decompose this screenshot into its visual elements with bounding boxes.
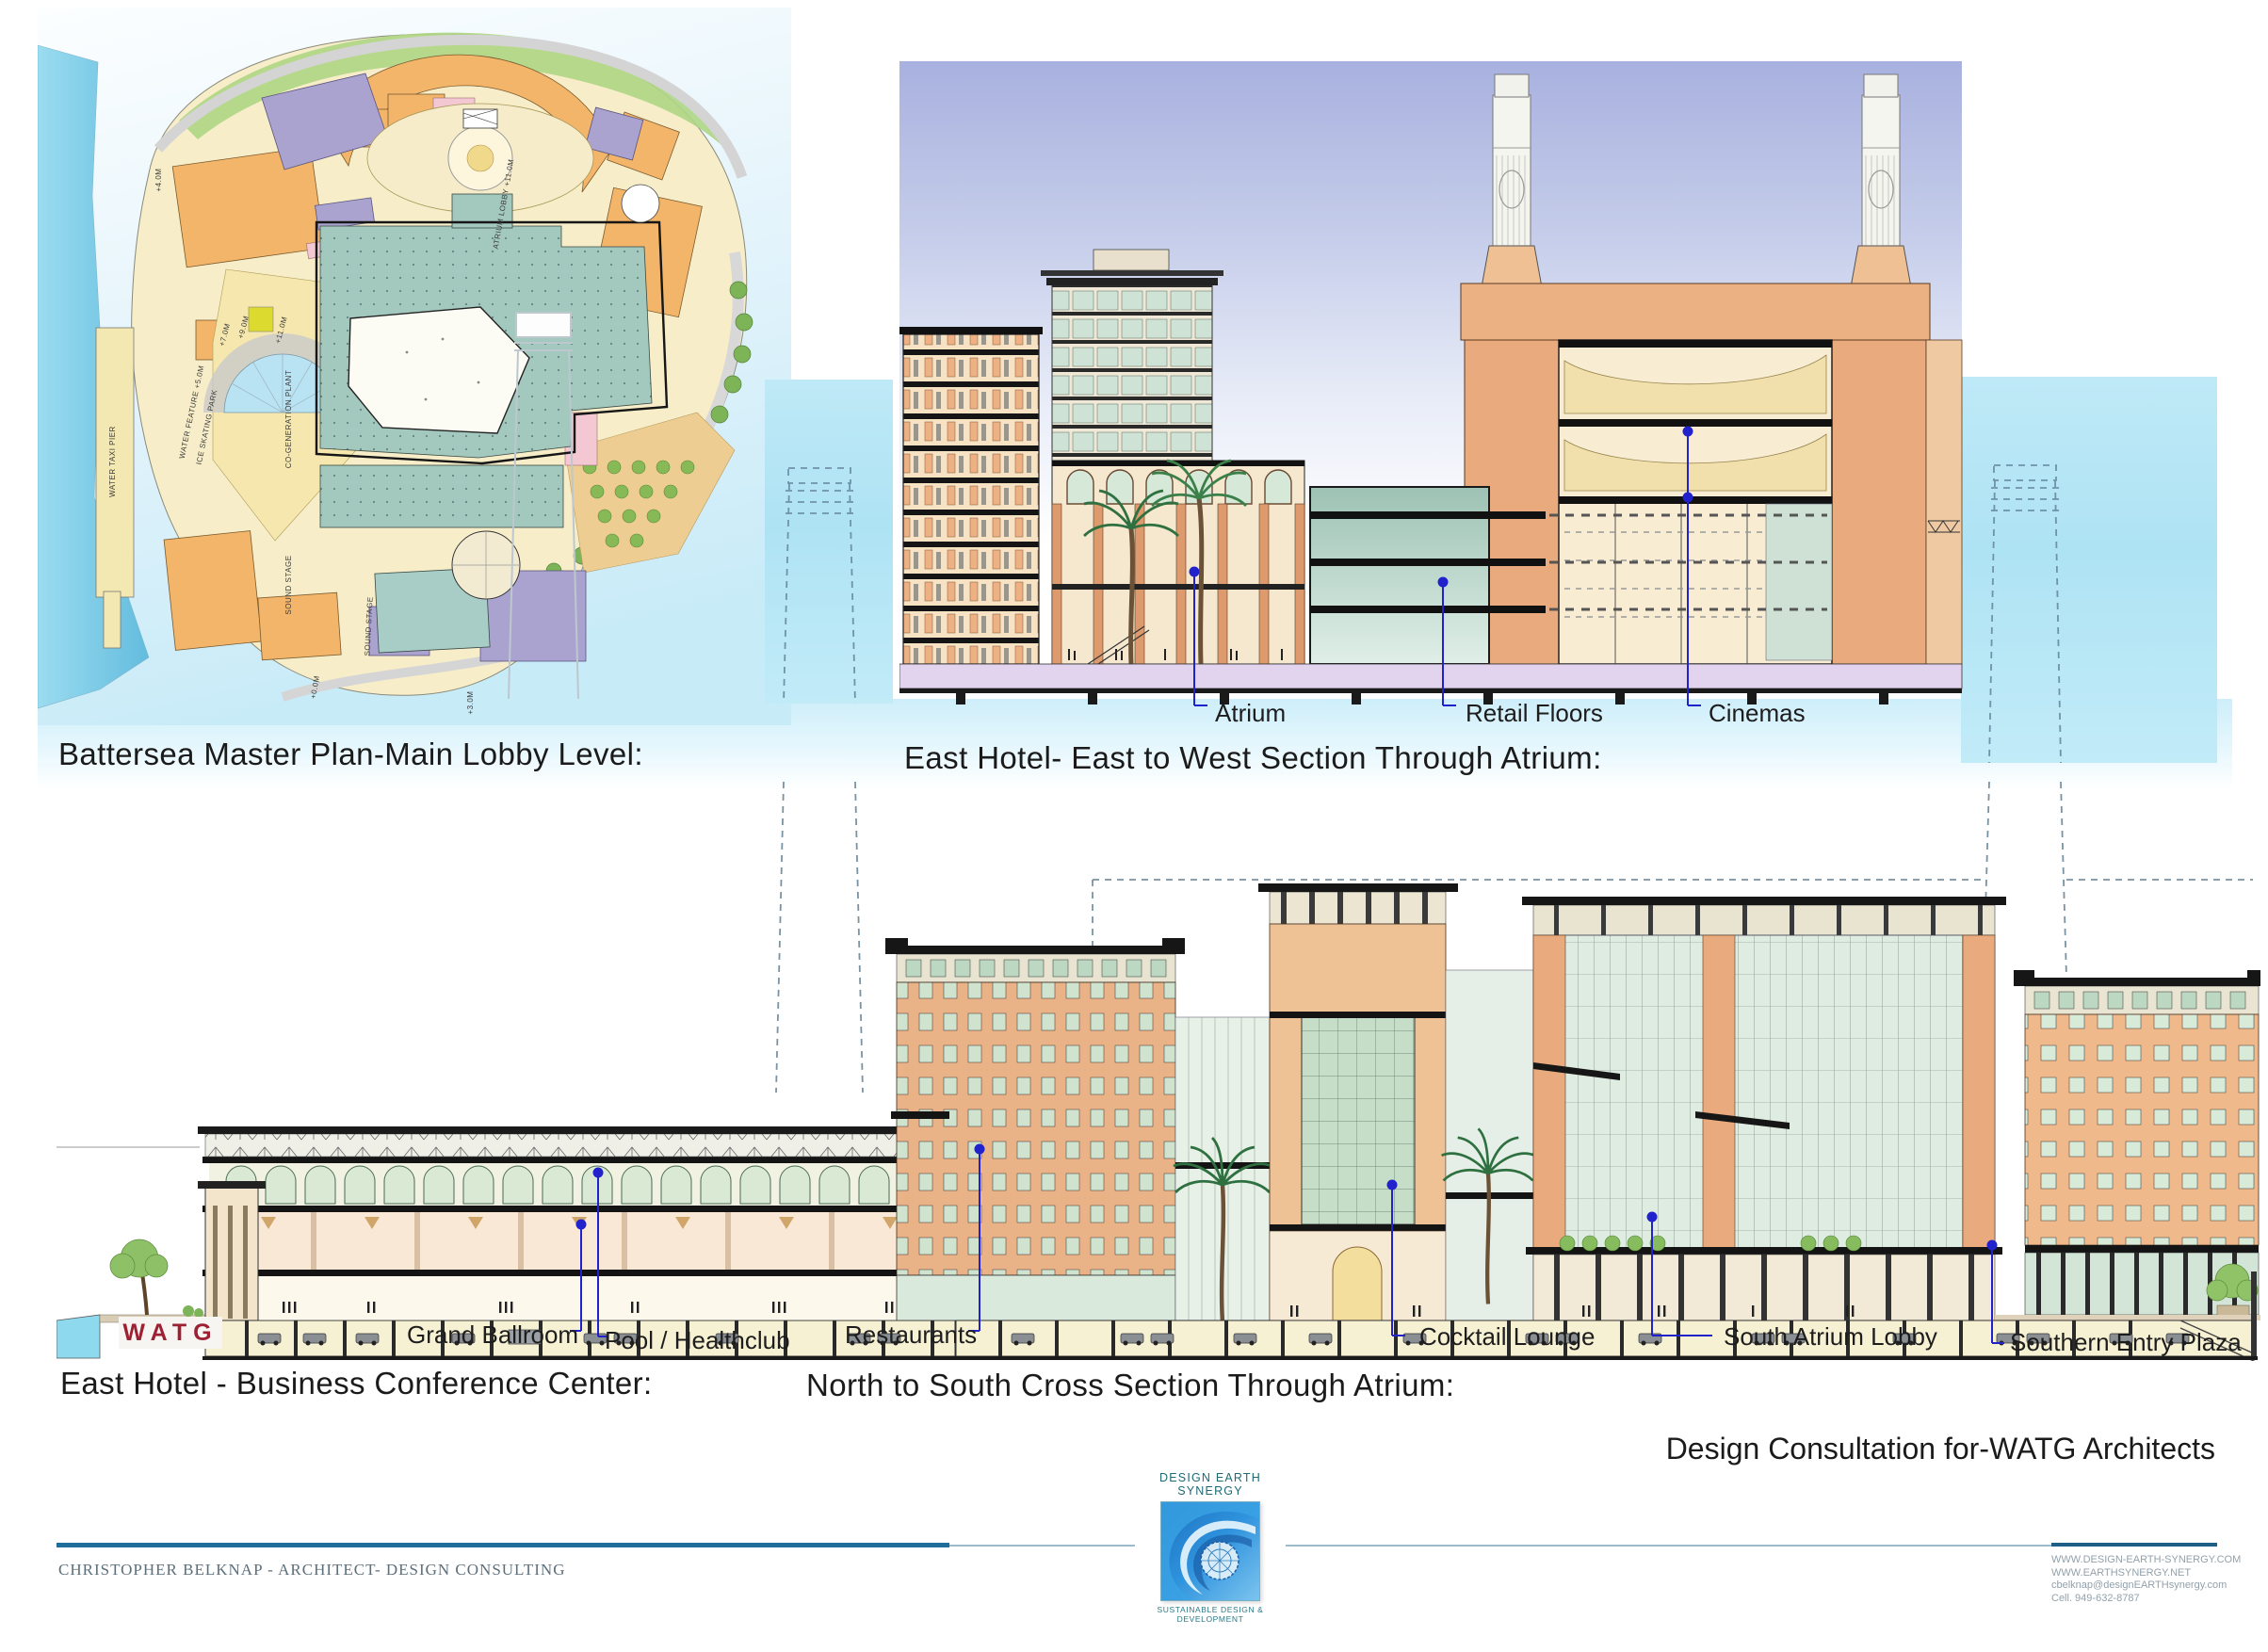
ns-label-restaurants-text: Restaurants <box>845 1320 977 1349</box>
presentation-board: WATER TAXI PIER ATRIUM LOBBY +11.0M CO-G… <box>0 0 2268 1652</box>
north-south-section-drawing <box>57 782 2260 1361</box>
ns-label-southern-entry-plaza: Southern Entry Plaza <box>2010 1328 2242 1357</box>
north-south-section-title: North to South Cross Section Through Atr… <box>806 1368 1454 1403</box>
wave-logo-image <box>1160 1501 1260 1601</box>
ns-label-south-atrium-text: South Atrium Lobby <box>1724 1322 1937 1351</box>
cyan-strip-right <box>1961 377 2217 763</box>
east-west-section-drawing <box>899 61 1964 721</box>
watg-logo-text: WATG <box>122 1320 218 1347</box>
conference-title-text: East Hotel - Business Conference Center: <box>60 1366 653 1401</box>
logo-title-text: DESIGN EARTH SYNERGY <box>1135 1471 1286 1498</box>
ns-label-cocktail-lounge: Cocktail Lounge <box>1419 1322 1595 1352</box>
plan-label-cogeneration: CO-GENERATION PLANT <box>284 370 293 468</box>
ns-label-restaurants: Restaurants <box>845 1320 977 1350</box>
ew-label-atrium: Atrium <box>1215 699 1286 728</box>
master-plan-drawing: WATER TAXI PIER ATRIUM LOBBY +11.0M CO-G… <box>38 8 791 733</box>
east-west-title-text: East Hotel- East to West Section Through… <box>904 740 1602 775</box>
dashed-chimney-right-top <box>1961 377 2217 763</box>
architect-credit-line: CHRISTOPHER BELKNAP - ARCHITECT- DESIGN … <box>58 1561 565 1579</box>
contact-website-2: WWW.EARTHSYNERGY.NET <box>2051 1567 2241 1580</box>
ew-left-hotel-tower <box>899 327 1043 664</box>
plan-label-water-taxi-pier: WATER TAXI PIER <box>108 426 117 497</box>
ew-atrium <box>1052 461 1304 668</box>
footer-rule-right <box>2051 1543 2217 1547</box>
ns-label-grand-ballroom-text: Grand Ballroom <box>407 1320 578 1349</box>
ew-label-atrium-text: Atrium <box>1215 699 1286 727</box>
ghost-chimney-sketch <box>499 311 589 702</box>
dashed-chimney-left-top <box>765 380 893 704</box>
ns-label-pool-healthclub: Pool / Healthclub <box>605 1326 790 1355</box>
plan-label-level-3: +3.0M <box>466 691 475 715</box>
master-plan-title: Battersea Master Plan-Main Lobby Level: <box>58 737 643 772</box>
north-south-title-text: North to South Cross Section Through Atr… <box>806 1368 1454 1402</box>
contact-phone: Cell. 949-632-8787 <box>2051 1593 2241 1606</box>
consultation-credit-text: Design Consultation for-WATG Architects <box>1666 1432 2215 1466</box>
ew-label-cinemas-text: Cinemas <box>1709 699 1806 727</box>
plan-label-sound-stage-1: SOUND STAGE <box>284 555 293 614</box>
ns-label-pool-text: Pool / Healthclub <box>605 1326 790 1354</box>
contact-email: cbelknap@designEARTHsynergy.com <box>2051 1579 2241 1593</box>
conference-center-title: East Hotel - Business Conference Center: <box>60 1366 653 1401</box>
footer-rule-dark <box>57 1543 949 1547</box>
ew-label-retail-text: Retail Floors <box>1466 699 1603 727</box>
master-plan-title-text: Battersea Master Plan-Main Lobby Level: <box>58 737 643 771</box>
logo-tagline-text: SUSTAINABLE DESIGN & DEVELOPMENT <box>1135 1605 1286 1624</box>
design-earth-synergy-logo: DESIGN EARTH SYNERGY SUSTAINABLE DESIGN … <box>1135 1471 1286 1624</box>
east-west-section-title: East Hotel- East to West Section Through… <box>904 740 1602 776</box>
consultation-credit: Design Consultation for-WATG Architects <box>1554 1432 2215 1466</box>
architect-credit-text: CHRISTOPHER BELKNAP - ARCHITECT- DESIGN … <box>58 1561 565 1579</box>
ew-label-retail-floors: Retail Floors <box>1466 699 1603 728</box>
ns-label-southern-entry-text: Southern Entry Plaza <box>2010 1328 2242 1356</box>
watg-logo: WATG <box>119 1317 222 1349</box>
contact-block: WWW.DESIGN-EARTH-SYNERGY.COM WWW.EARTHSY… <box>2051 1554 2241 1605</box>
plan-label-level-4: +4.0M <box>154 169 163 192</box>
ew-label-cinemas: Cinemas <box>1709 699 1806 728</box>
cyan-strip-left <box>765 380 893 704</box>
ns-label-cocktail-text: Cocktail Lounge <box>1419 1322 1595 1351</box>
footer-rule-light <box>949 1545 2051 1547</box>
ns-label-south-atrium-lobby: South Atrium Lobby <box>1724 1322 1937 1352</box>
ns-towers <box>885 883 2260 1322</box>
contact-website-1: WWW.DESIGN-EARTH-SYNERGY.COM <box>2051 1554 2241 1567</box>
ns-label-grand-ballroom: Grand Ballroom <box>407 1320 578 1350</box>
wave-icon <box>1161 1502 1259 1600</box>
